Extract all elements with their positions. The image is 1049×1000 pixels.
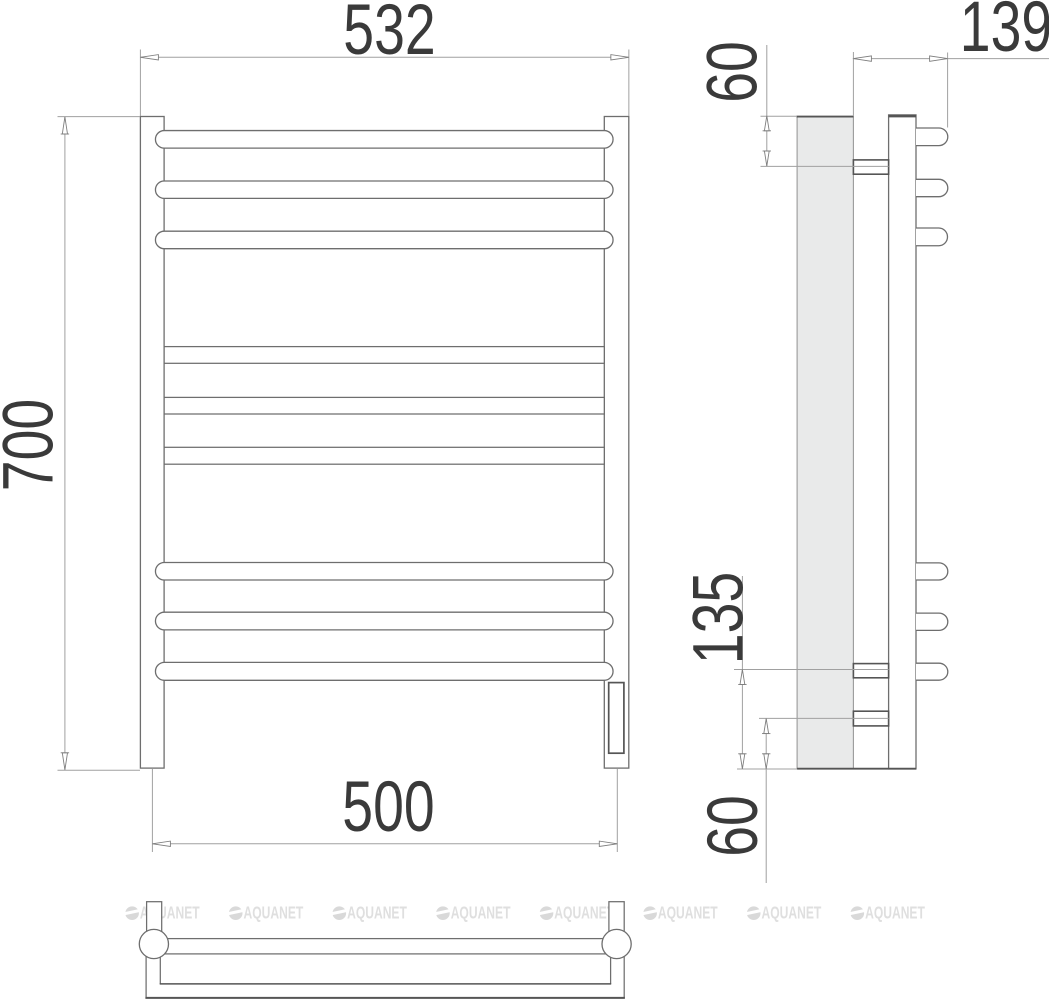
svg-text:135: 135 bbox=[679, 572, 758, 664]
svg-text:60: 60 bbox=[694, 795, 773, 857]
svg-text:500: 500 bbox=[342, 768, 434, 847]
svg-text:AQUANET: AQUANET bbox=[347, 903, 407, 923]
svg-text:139: 139 bbox=[960, 0, 1049, 67]
svg-text:AQUANET: AQUANET bbox=[762, 903, 822, 923]
svg-text:60: 60 bbox=[694, 41, 773, 103]
svg-text:AQUANET: AQUANET bbox=[554, 903, 614, 923]
svg-text:AQUANET: AQUANET bbox=[451, 903, 511, 923]
svg-text:AQUANET: AQUANET bbox=[244, 903, 304, 923]
svg-text:700: 700 bbox=[0, 399, 69, 491]
svg-text:AQUANET: AQUANET bbox=[865, 903, 925, 923]
svg-text:AQUANET: AQUANET bbox=[658, 903, 718, 923]
svg-text:532: 532 bbox=[343, 0, 435, 70]
